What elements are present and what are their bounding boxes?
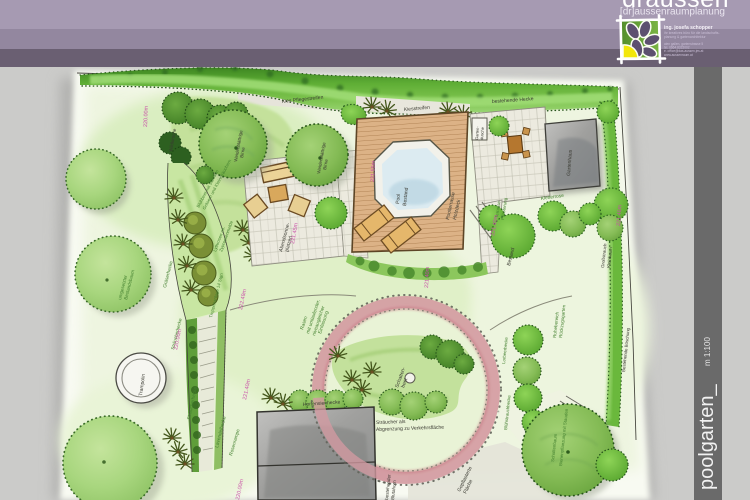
svg-text:221.55m: 221.55m (370, 160, 377, 182)
svg-text:poolgarten_: poolgarten_ (696, 383, 718, 490)
svg-text:220.00m: 220.00m (143, 105, 150, 127)
svg-text:221.40m: 221.40m (424, 266, 431, 288)
svg-text:planung & gartenarchitektur: planung & gartenarchitektur (664, 35, 707, 39)
svg-text:www.aussenraum.at: www.aussenraum.at (664, 53, 693, 57)
svg-text:dusche: dusche (479, 126, 485, 140)
svg-text:Pool: Pool (395, 194, 402, 205)
svg-text:Sträucher als: Sträucher als (376, 419, 406, 426)
svg-text:[dr]aussenraumplanung: [dr]aussenraumplanung (620, 7, 725, 18)
svg-text:m 1:100: m 1:100 (703, 337, 712, 366)
